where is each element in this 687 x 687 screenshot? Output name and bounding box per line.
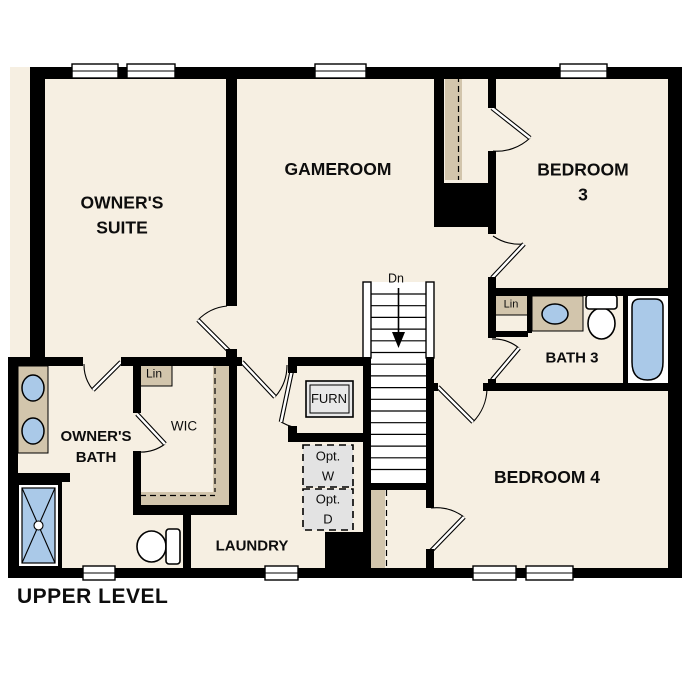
label-stairs-down: Dn [388,270,404,288]
plan-title: UPPER LEVEL [17,585,168,609]
room-label-laundry: LAUNDRY [216,536,289,557]
room-label-bedroom4: BEDROOM 4 [494,465,600,490]
room-label-owners-bath: OWNER'S BATH [60,426,131,468]
shower [15,481,62,570]
room-label-bath3: BATH 3 [545,348,598,369]
floor-plan-drawing [0,0,687,687]
shower-drain [34,521,43,530]
stair-rail-left [363,282,371,358]
bathtub [632,299,663,380]
toilet-owners [137,529,180,564]
label-furnace: FURN [311,390,347,408]
wic-shelf-east [213,366,229,505]
label-linen-wic: Lin [146,366,162,383]
sink-owners-1 [22,375,44,401]
sink-owners-2 [22,418,44,444]
label-linen-bath3: Lin [504,297,519,312]
room-label-gameroom: GAMEROOM [285,157,392,182]
label-opt-dryer: Opt. D [316,490,341,529]
room-label-wic: WIC [171,418,197,437]
room-label-bedroom3: BEDROOM 3 [531,158,635,207]
bedroom4-closet-shelf [371,490,385,568]
sink-bath3 [542,304,568,324]
stair-rail-right [426,282,434,358]
toilet-bath3 [586,295,617,339]
bedroom3-closet-shelf [445,75,462,180]
floor-plan: OWNER'S SUITE GAMEROOM BEDROOM 3 BEDROOM… [0,0,687,687]
room-label-owners-suite: OWNER'S SUITE [81,191,164,240]
wic-shelf-south [141,492,229,505]
label-opt-washer: Opt. W [316,447,341,486]
